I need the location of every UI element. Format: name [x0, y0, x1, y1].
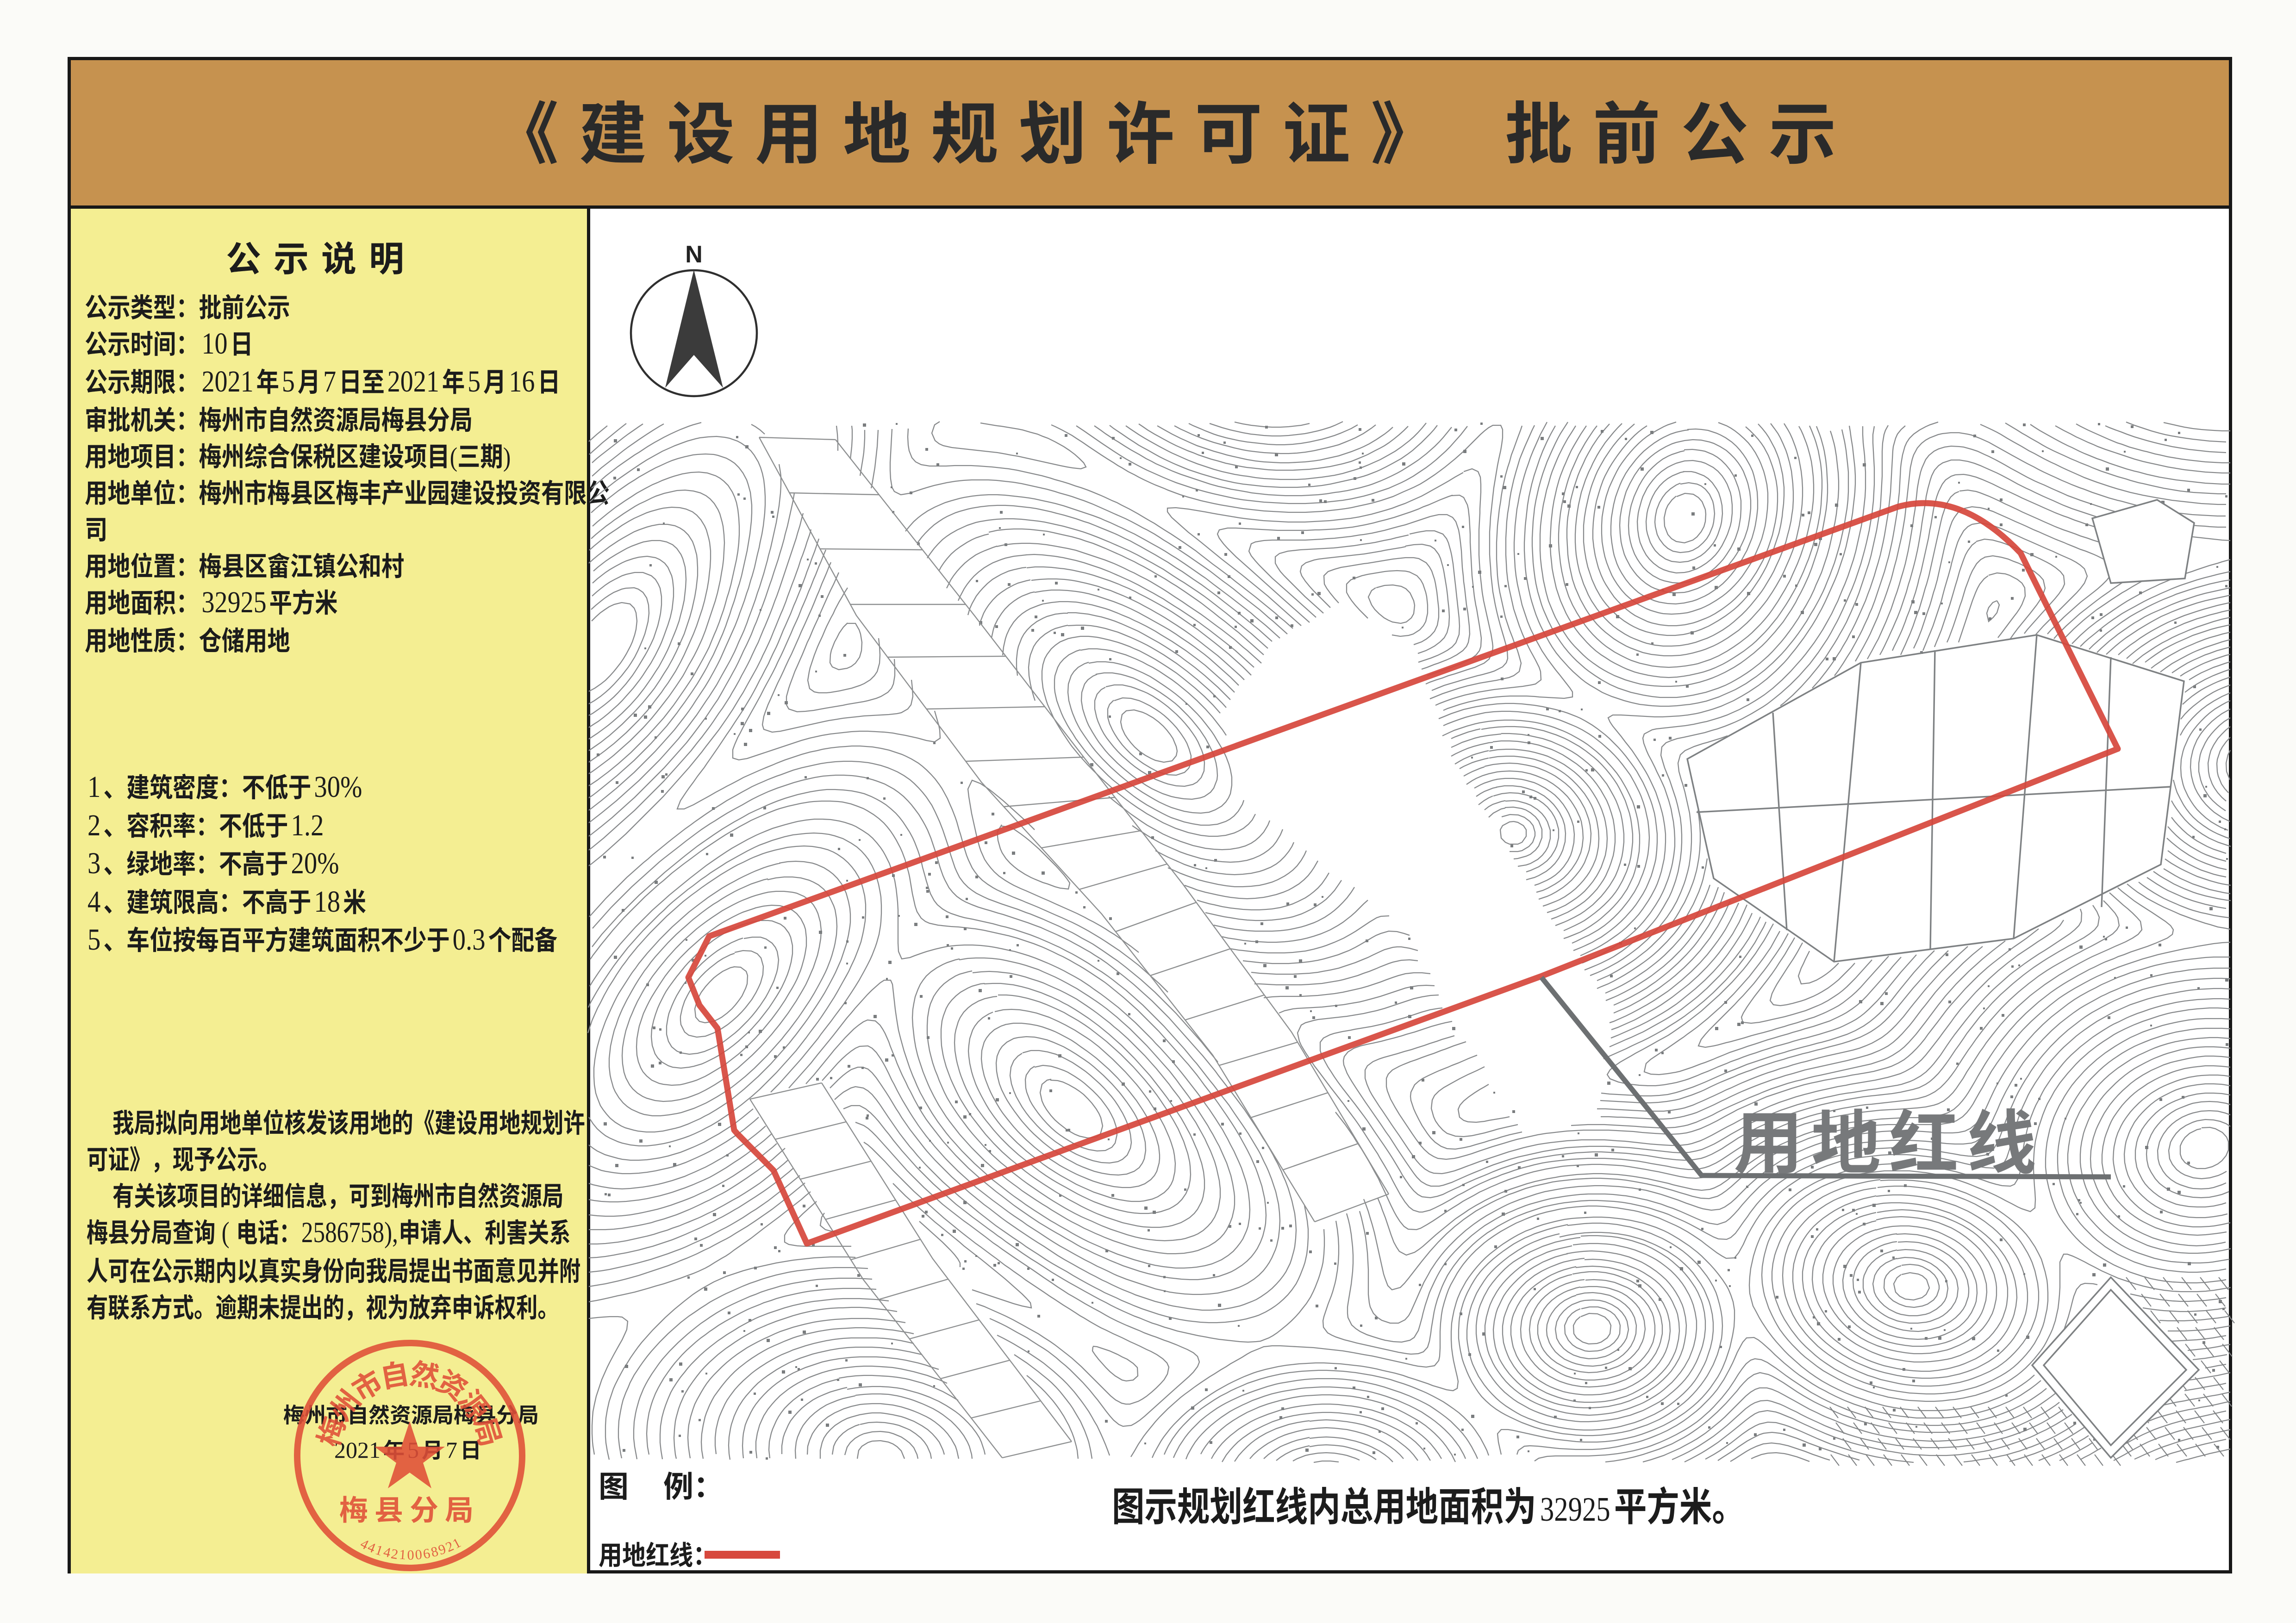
svg-text:梅县分局: 梅县分局	[339, 1487, 480, 1529]
svg-text:0: 0	[407, 1543, 414, 1564]
svg-text:1: 1	[399, 1543, 407, 1564]
